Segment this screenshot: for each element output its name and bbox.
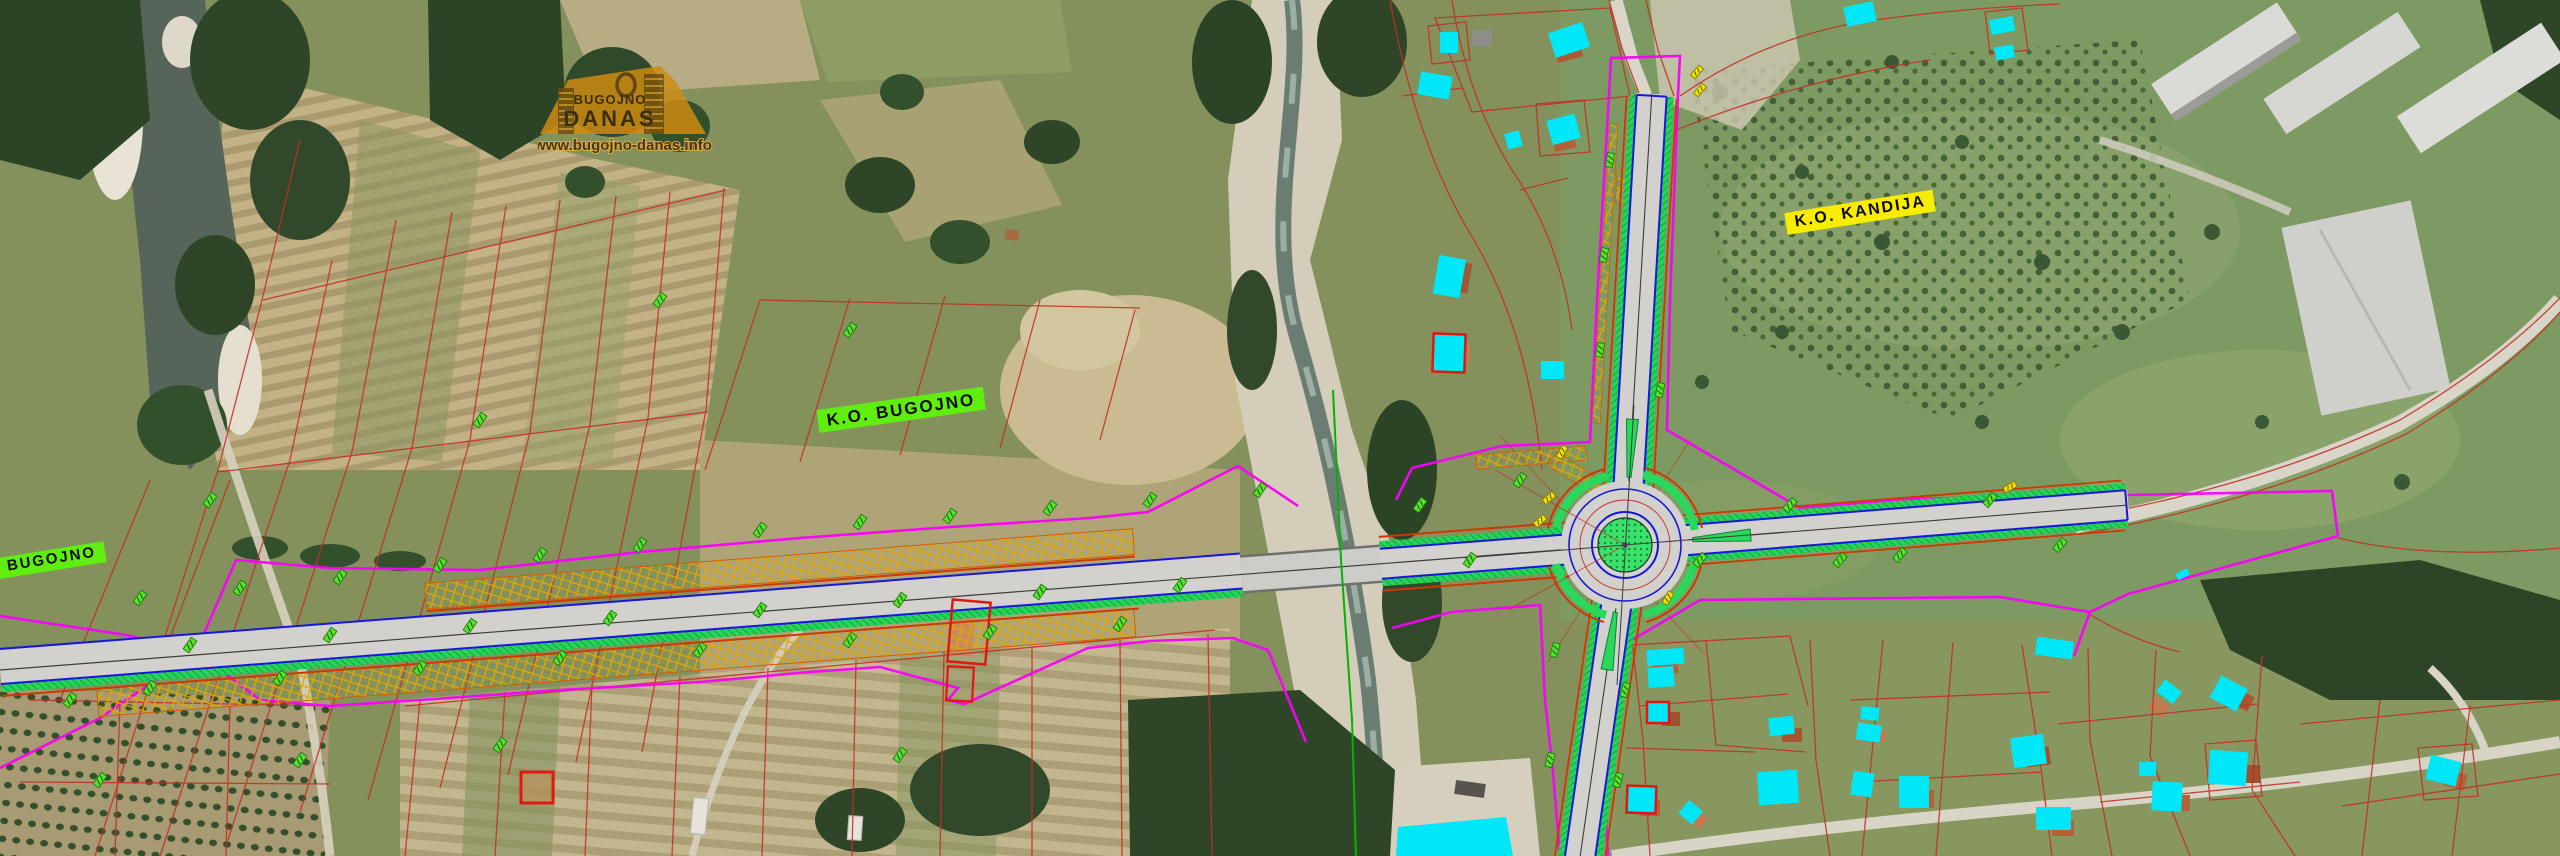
watermark-url: www.bugojno-danas.info <box>538 137 712 154</box>
orthophoto-map: K.O. BUGOJNO K.O. KANDIJA BUGOJNO BUGOJN… <box>0 0 2560 856</box>
map-drawing <box>0 0 2560 856</box>
watermark-top-text: BUGOJNO <box>574 92 647 107</box>
watermark-main-text: DANAS <box>563 106 656 131</box>
watermark-logo: BUGOJNO DANAS www.bugojno-danas.info <box>538 62 714 158</box>
terrain <box>0 0 2560 856</box>
